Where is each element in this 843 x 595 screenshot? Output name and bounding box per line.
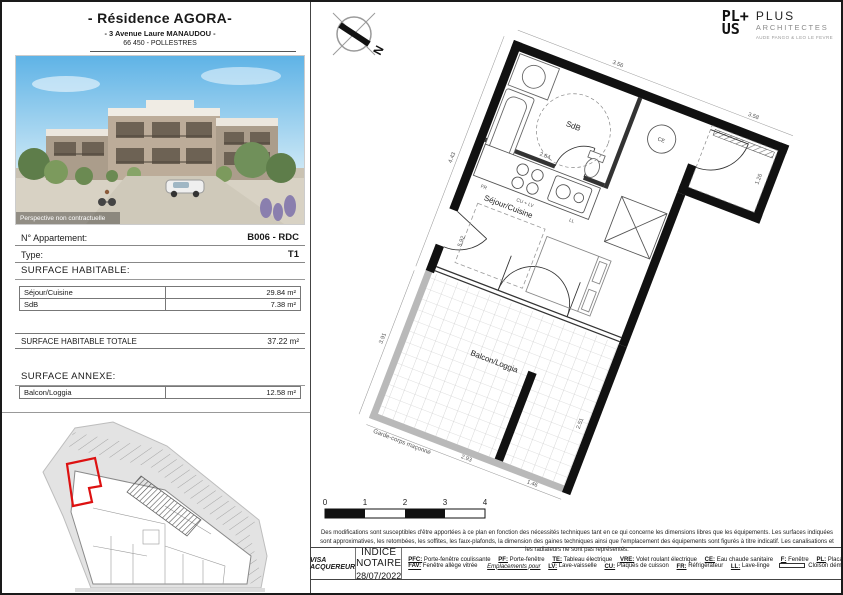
table-row: SdB 7.38 m² bbox=[20, 299, 301, 311]
room-label: Séjour/Cuisine bbox=[20, 287, 166, 299]
logo-name: PLUS bbox=[756, 10, 833, 23]
svg-text:1.26: 1.26 bbox=[754, 173, 764, 186]
apartment-number-label: N° Appartement: bbox=[21, 233, 87, 243]
appliance-label-ce: CE bbox=[657, 137, 666, 145]
apartment-type-row: Type: T1 bbox=[15, 246, 305, 263]
surface-annexe-table: Balcon/Loggia 12.58 m² bbox=[19, 386, 301, 399]
photo-caption: Perspective non contractuelle bbox=[20, 215, 106, 222]
svg-text:3.56: 3.56 bbox=[611, 60, 624, 70]
kitchen-counter bbox=[473, 144, 600, 219]
panel-divider bbox=[310, 2, 311, 595]
cloison-demontable-symbol bbox=[779, 563, 805, 568]
svg-text:3.58: 3.58 bbox=[747, 112, 760, 122]
appliance-label-ll: LL bbox=[568, 218, 575, 226]
site-key-plan bbox=[15, 416, 307, 595]
table-row: Séjour/Cuisine 29.84 m² bbox=[20, 287, 301, 299]
room-area: 29.84 m² bbox=[166, 287, 301, 299]
legend-cell: PFC: Porte-fenêtre coulissante PF: Porte… bbox=[402, 548, 843, 579]
indice-notaire-cell: INDICE NOTAIRE 28/07/2022 bbox=[356, 548, 402, 579]
room-area: 7.38 m² bbox=[166, 299, 301, 311]
apartment-type-label: Type: bbox=[21, 250, 43, 260]
svg-text:4: 4 bbox=[483, 498, 488, 507]
residence-title: - Résidence AGORA- bbox=[15, 10, 305, 26]
surface-totale-label: SURFACE HABITABLE TOTALE bbox=[21, 337, 137, 346]
wall-top bbox=[511, 40, 789, 154]
room-label: SdB bbox=[20, 299, 166, 311]
surface-habitable-heading: SURFACE HABITABLE: bbox=[15, 265, 305, 280]
apartment-number-value: B006 - RDC bbox=[247, 232, 299, 243]
wall-right-stub bbox=[679, 163, 697, 191]
residence-city: 66 450 - POLLESTRES bbox=[15, 40, 305, 50]
apartment-type-value: T1 bbox=[288, 249, 299, 260]
appliance-label-fr: FR bbox=[480, 184, 489, 192]
scale-bar: 0 1 2 3 4 bbox=[320, 496, 492, 527]
residence-header: - Résidence AGORA- - 3 Avenue Laure MANA… bbox=[15, 10, 305, 50]
building-photo: Perspective non contractuelle bbox=[15, 55, 305, 225]
room-area: 12.58 m² bbox=[166, 387, 301, 399]
site-road bbox=[75, 588, 265, 592]
svg-text:0: 0 bbox=[323, 498, 328, 507]
floor-plan: SdB Séjour/Cuisine Balcon/Loggia Garde-c… bbox=[354, 28, 819, 511]
footer-table: VISA ACQUEREUR INDICE NOTAIRE 28/07/2022… bbox=[310, 547, 843, 580]
sdb-wall-vertical bbox=[603, 97, 642, 189]
wall-right bbox=[619, 192, 686, 347]
indice-notaire-date: 28/07/2022 bbox=[356, 571, 401, 581]
room-label: Balcon/Loggia bbox=[20, 387, 166, 399]
left-panel-separator bbox=[2, 412, 310, 413]
building-photo-art: Perspective non contractuelle bbox=[16, 56, 304, 224]
plan-sheet: - Résidence AGORA- - 3 Avenue Laure MANA… bbox=[0, 0, 843, 595]
svg-text:2: 2 bbox=[403, 498, 408, 507]
room-label-sdb: SdB bbox=[565, 119, 582, 133]
entrance-door bbox=[444, 212, 492, 261]
indice-notaire-label: INDICE NOTAIRE bbox=[356, 547, 401, 569]
legend-row-2: FAV: Fenêtre allège vitrée Emplacements … bbox=[408, 563, 843, 569]
surface-totale-row: SURFACE HABITABLE TOTALE 37.22 m² bbox=[15, 333, 305, 349]
apartment-number-row: N° Appartement: B006 - RDC bbox=[15, 229, 305, 246]
surface-totale-value: 37.22 m² bbox=[267, 337, 299, 346]
bed bbox=[526, 236, 611, 316]
scale-ticks: 0 1 2 3 4 bbox=[323, 498, 488, 507]
surface-annexe-heading: SURFACE ANNEXE: bbox=[15, 371, 305, 386]
svg-text:3: 3 bbox=[443, 498, 448, 507]
visa-acquereur-cell: VISA ACQUEREUR bbox=[310, 548, 356, 579]
surface-habitable-table: Séjour/Cuisine 29.84 m² SdB 7.38 m² bbox=[19, 286, 301, 311]
residence-address: - 3 Avenue Laure MANAUDOU - bbox=[15, 29, 305, 38]
table-row: Balcon/Loggia 12.58 m² bbox=[20, 387, 301, 399]
header-rule bbox=[90, 51, 296, 52]
svg-text:1: 1 bbox=[363, 498, 368, 507]
wall-annex-bottom bbox=[677, 184, 762, 224]
svg-text:5.92: 5.92 bbox=[457, 235, 467, 248]
